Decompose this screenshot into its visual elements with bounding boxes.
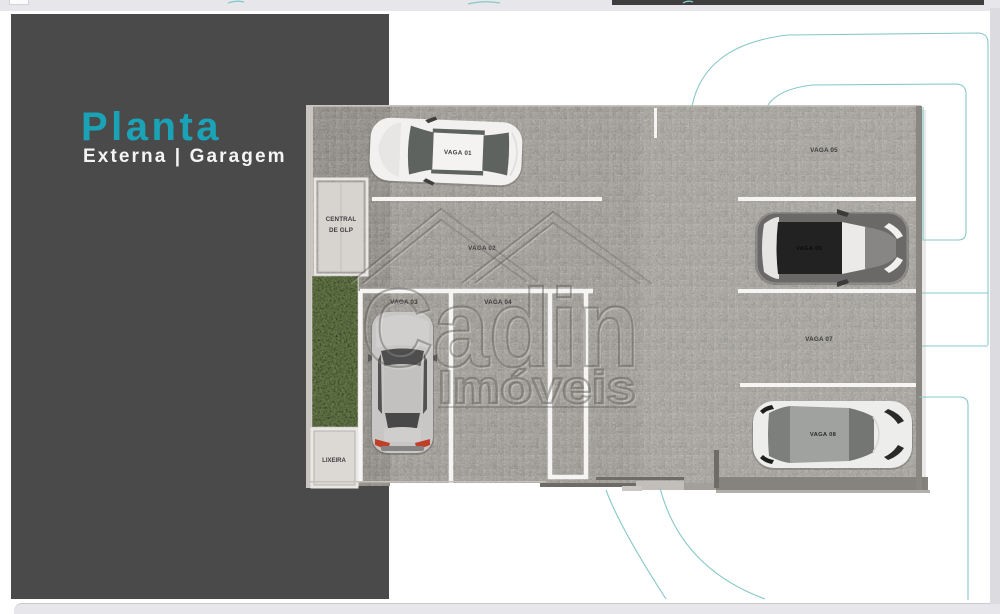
- svg-text:VAGA 08: VAGA 08: [810, 432, 837, 438]
- svg-text:DE GLP: DE GLP: [329, 227, 353, 234]
- svg-text:VAGA 05: VAGA 05: [810, 147, 838, 154]
- svg-text:LIXEIRA: LIXEIRA: [322, 458, 346, 464]
- svg-text:Imóveis: Imóveis: [438, 361, 636, 413]
- svg-text:VAGA 07: VAGA 07: [805, 336, 833, 343]
- svg-text:VAGA 06: VAGA 06: [796, 246, 823, 252]
- svg-text:CENTRAL: CENTRAL: [326, 216, 357, 223]
- svg-text:VAGA 01: VAGA 01: [444, 149, 472, 157]
